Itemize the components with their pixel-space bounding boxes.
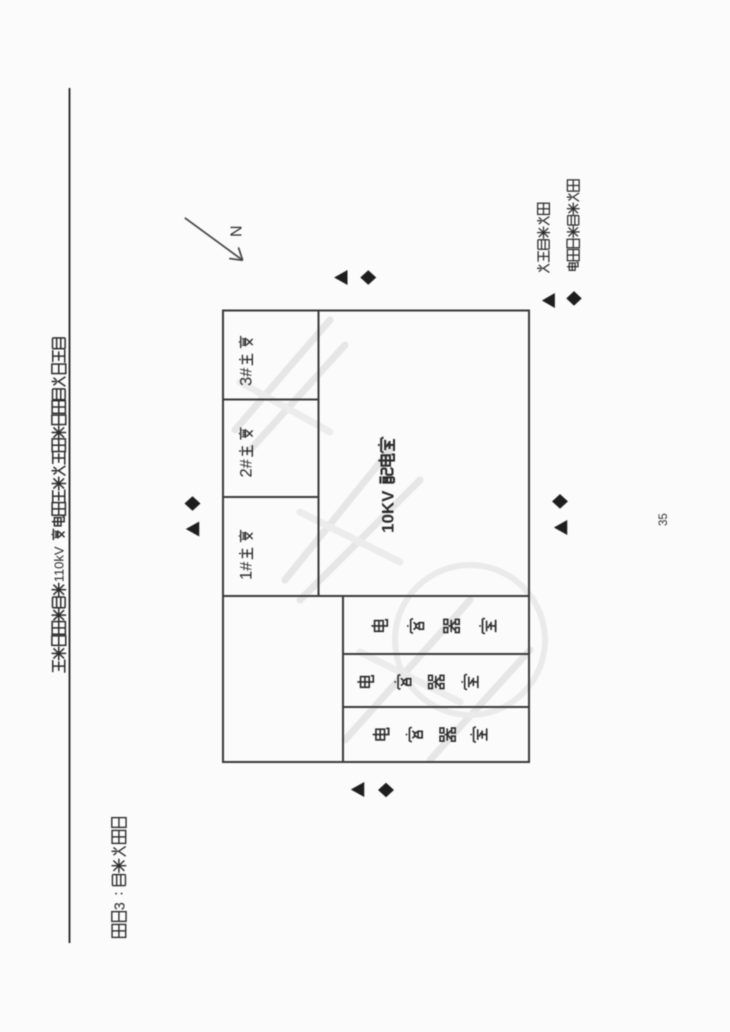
svg-text:N: N xyxy=(229,225,246,237)
svg-text:3: 3 xyxy=(112,902,128,910)
svg-text:110kV: 110kV xyxy=(52,546,67,582)
svg-text:35: 35 xyxy=(658,513,670,526)
svg-text:3#: 3# xyxy=(238,367,256,386)
svg-text:10KV: 10KV xyxy=(379,490,398,533)
svg-text:1#: 1# xyxy=(238,561,256,580)
svg-text:2#: 2# xyxy=(238,458,256,477)
